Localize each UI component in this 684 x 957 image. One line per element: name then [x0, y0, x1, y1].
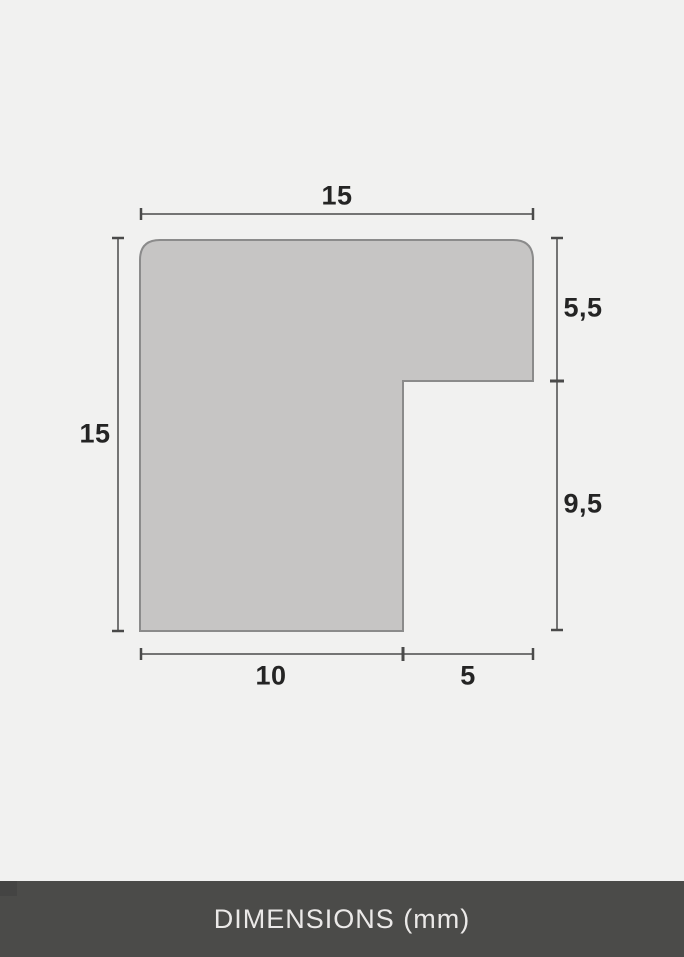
- footer-title: DIMENSIONS (mm): [214, 906, 470, 933]
- dimension-line-right: [550, 238, 564, 630]
- dim-label-left-height: 15: [79, 421, 110, 448]
- footer-corner-shade: [0, 881, 17, 896]
- dim-label-bottom-left: 10: [255, 663, 286, 690]
- profile-shape: [140, 240, 533, 631]
- footer-bar: DIMENSIONS (mm): [0, 881, 684, 957]
- dimension-line-bottom: [141, 647, 533, 661]
- dim-label-right-lower: 9,5: [563, 491, 602, 518]
- dimension-drawing-page: 15 15 5,5 9,5 10 5 DIMENSIONS (mm): [0, 0, 684, 957]
- dim-label-top-width: 15: [321, 183, 352, 210]
- dim-label-bottom-right: 5: [460, 663, 476, 690]
- dim-label-right-upper: 5,5: [563, 295, 602, 322]
- dimension-line-left: [112, 238, 124, 631]
